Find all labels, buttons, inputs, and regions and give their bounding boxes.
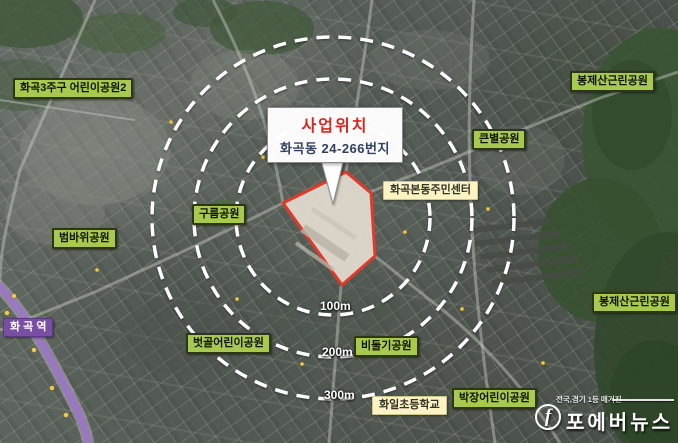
label-hwagok3-children-park: 화곡3주구 어린이공원2	[13, 78, 133, 99]
label-bongjesan-park-top: 봉제산근린공원	[570, 71, 655, 92]
watermark-logo-icon: f	[535, 404, 561, 430]
ring-label-100m: 100m	[320, 299, 351, 313]
label-beombawi-park: 범바위공원	[52, 228, 117, 249]
site-callout: 사업위치 화곡동 24-266번지	[267, 107, 403, 163]
news-map-graphic: 사업위치 화곡동 24-266번지 화곡3주구 어린이공원2 봉제산근린공원 큰…	[0, 0, 678, 443]
label-bidulgi-park: 비둘기공원	[354, 336, 419, 357]
label-hwagok-station: 화 곡 역	[3, 318, 53, 337]
label-bongjesan-park-right: 봉제산근린공원	[592, 292, 677, 313]
watermark-brand: 포에버뉴스	[566, 406, 673, 435]
label-gureum-park: 구름공원	[192, 204, 246, 225]
callout-title: 사업위치	[268, 112, 402, 136]
label-hwagok-community-center: 화곡본동주민센터	[383, 181, 478, 200]
metro-line	[0, 284, 89, 443]
label-beotgol-children-park: 벗골어린이공원	[186, 333, 271, 354]
watermark-line	[612, 399, 674, 401]
map-overlay-svg	[0, 0, 678, 443]
ring-label-200m: 200m	[322, 345, 353, 359]
label-keunbyeol-park: 큰별공원	[472, 129, 526, 150]
ring-label-300m: 300m	[324, 388, 355, 402]
label-bakjang-children-park: 박장어린이공원	[452, 388, 537, 409]
callout-subtitle: 화곡동 24-266번지	[268, 138, 402, 157]
label-hwail-elementary-school: 화일초등학교	[372, 396, 447, 415]
